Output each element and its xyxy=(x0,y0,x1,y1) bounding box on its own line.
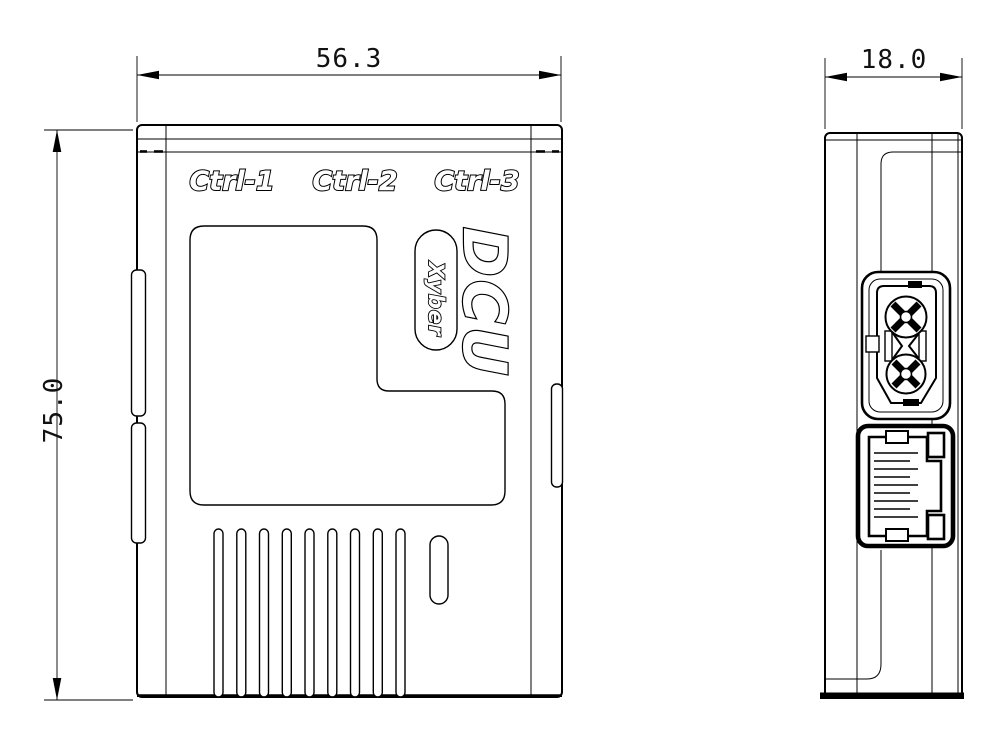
rj45-post-top xyxy=(928,433,944,457)
xt30-key-bar-left xyxy=(885,331,892,361)
side-bottom-base xyxy=(820,693,964,700)
xt30-side-notch xyxy=(866,336,879,352)
side-view xyxy=(820,133,964,699)
port-label-ctrl1: Ctrl-1 xyxy=(189,166,274,197)
vent-slot xyxy=(351,529,360,697)
left-clip-lower xyxy=(132,423,146,543)
arrowhead-left xyxy=(825,73,847,82)
port-label-ctrl2: Ctrl-2 xyxy=(312,166,397,197)
xt30-power-connector xyxy=(862,272,950,419)
depth-dimension: 18.0 xyxy=(825,45,962,129)
rj45-bottom-notch xyxy=(886,529,908,541)
right-clip xyxy=(552,384,563,487)
xt30-terminal-upper xyxy=(886,297,927,338)
vent-slots xyxy=(214,529,405,697)
height-dimension-value: 75.0 xyxy=(39,377,69,444)
vent-slot xyxy=(373,529,382,697)
vent-slot xyxy=(396,529,405,697)
vent-slot xyxy=(260,529,269,697)
vent-slot xyxy=(214,529,223,697)
arrowhead-right xyxy=(940,73,962,82)
port-label-ctrl3: Ctrl-3 xyxy=(434,166,519,197)
rj45-top-notch xyxy=(886,431,908,443)
product-name-text: DCU xyxy=(449,227,519,379)
rj45-ethernet-port xyxy=(858,426,953,546)
width-dimension-value: 56.3 xyxy=(316,44,383,74)
drawing-canvas: Ctrl-1 Ctrl-2 Ctrl-3 Xyber DCU xyxy=(0,0,1000,737)
arrowhead-bottom xyxy=(53,678,62,700)
height-dimension: 75.0 xyxy=(39,130,133,700)
vent-slot xyxy=(305,529,314,697)
xt30-bottom-tab xyxy=(903,399,919,406)
left-clip-upper xyxy=(132,270,146,416)
arrowhead-left xyxy=(137,71,159,80)
vent-slot xyxy=(282,529,291,697)
xt30-top-tab xyxy=(908,281,922,288)
xt30-terminal-lower xyxy=(887,355,926,394)
led-window-slot xyxy=(430,536,448,604)
dimension-drawing: Ctrl-1 Ctrl-2 Ctrl-3 Xyber DCU xyxy=(0,0,1000,737)
depth-dimension-value: 18.0 xyxy=(861,45,928,75)
arrowhead-right xyxy=(539,71,561,80)
front-view: Ctrl-1 Ctrl-2 Ctrl-3 Xyber DCU xyxy=(132,125,563,697)
vent-slot xyxy=(237,529,246,697)
width-dimension: 56.3 xyxy=(137,44,561,122)
brand-text: Xyber xyxy=(424,260,448,337)
rj45-post-bottom xyxy=(928,515,944,539)
arrowhead-top xyxy=(53,130,62,152)
vent-slot xyxy=(328,529,337,697)
xt30-key-bar-right xyxy=(919,331,926,361)
